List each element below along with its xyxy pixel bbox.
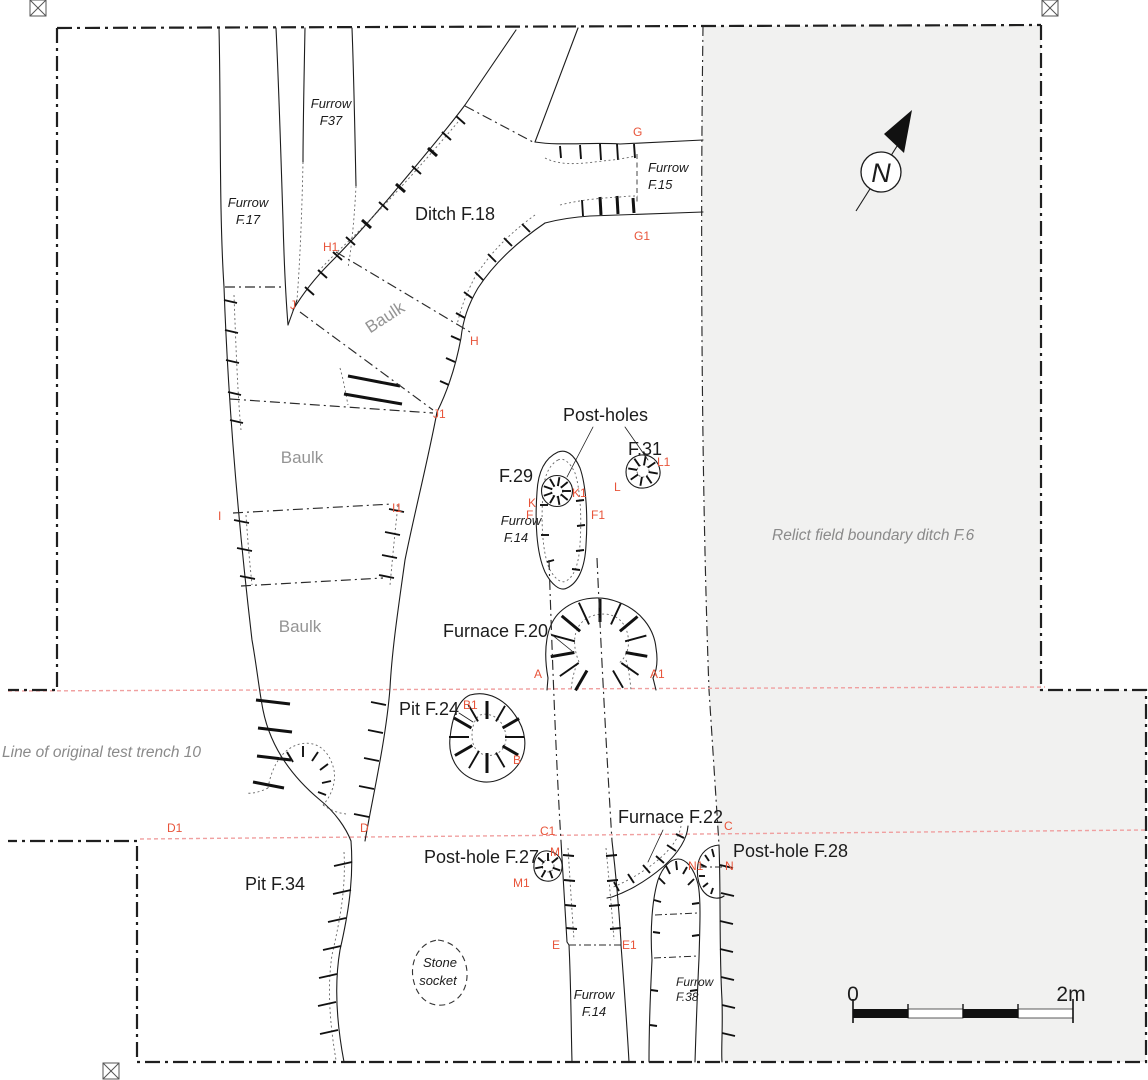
survey-marker-icon: [1042, 0, 1058, 16]
section-letter-m: M: [550, 845, 560, 859]
label-baulk-lower: Baulk: [279, 617, 322, 636]
pit-f24: [449, 694, 525, 782]
excavation-plan: N 0 2m Ditch F.18 Post-holes F.31 F.29 F…: [0, 0, 1148, 1080]
label-pit-f24: Pit F.24: [399, 699, 459, 719]
survey-marker-icon: [103, 1063, 119, 1079]
section-letter-a: A: [534, 667, 542, 681]
label-ditch-f18: Ditch F.18: [415, 204, 495, 224]
label-post-hole-f28: Post-hole F.28: [733, 841, 848, 861]
furrow-f14-upper: [536, 451, 587, 589]
section-letter-i1: I1: [392, 501, 402, 515]
label-baulk-middle: Baulk: [281, 448, 324, 467]
label-test-trench: Line of original test trench 10: [2, 744, 201, 761]
label-furrow-f17: Furrow: [228, 195, 270, 210]
section-letter-k1: K1: [572, 486, 587, 500]
label-furrow-f38-num: F.38: [676, 990, 699, 1004]
pit-f34-hachures: [318, 862, 352, 1034]
section-letter-h1: H1: [323, 240, 339, 254]
section-letter-h: H: [470, 334, 479, 348]
section-letter-l1: L1: [657, 455, 671, 469]
label-furrow-f37: Furrow: [311, 96, 353, 111]
post-hole-f29: [542, 476, 573, 507]
test-trench-hachures: [253, 700, 292, 788]
section-letter-f1: F1: [591, 508, 605, 522]
section-letter-g1: G1: [634, 229, 650, 243]
section-letter-m1: M1: [513, 876, 530, 890]
label-stone-socket: Stone: [423, 955, 457, 970]
furrow-f38: [649, 859, 700, 1062]
section-letter-j1: J1: [433, 407, 446, 421]
label-post-hole-f27: Post-hole F.27: [424, 847, 539, 867]
label-furrow-f14-lower: Furrow: [574, 987, 616, 1002]
section-letter-j: J: [290, 298, 296, 312]
f15-south-hachures: [582, 196, 634, 216]
label-baulk-upper: Baulk: [362, 298, 408, 337]
label-furrow-f37-num: F37: [320, 113, 343, 128]
site-plan-svg: N 0 2m Ditch F.18 Post-holes F.31 F.29 F…: [0, 0, 1148, 1080]
post-hole-f31: [626, 455, 660, 488]
label-furrow-f15-num: F.15: [648, 177, 673, 192]
section-letter-g: G: [633, 125, 642, 139]
label-furrow-f38: Furrow: [676, 975, 715, 989]
label-furrow-f14-upper: Furrow: [501, 513, 543, 528]
label-furnace-f20: Furnace F.20: [443, 621, 548, 641]
section-letter-e: E: [552, 938, 560, 952]
label-furrow-f15: Furrow: [648, 160, 690, 175]
scale-max-label: 2m: [1056, 983, 1085, 1006]
label-f29: F.29: [499, 466, 533, 486]
section-letter-b1: B1: [463, 698, 478, 712]
label-furnace-f22: Furnace F.22: [618, 807, 723, 827]
section-letter-d1: D1: [167, 821, 183, 835]
survey-marker-icon: [30, 0, 46, 16]
label-furrow-f17-num: F.17: [236, 212, 261, 227]
section-letter-c1: C1: [540, 824, 556, 838]
section-letter-c: C: [724, 819, 733, 833]
section-letter-n1: N1: [688, 859, 704, 873]
junction-hachures: [287, 746, 331, 795]
label-post-holes: Post-holes: [563, 405, 648, 425]
ditch-f18-se-hachures: [440, 224, 530, 385]
section-letter-i: I: [218, 509, 221, 523]
label-furrow-f14-lower-num: F.14: [582, 1004, 606, 1019]
north-label: N: [871, 158, 891, 188]
strip-left-hachures: [224, 300, 243, 423]
section-letter-n: N: [725, 859, 734, 873]
furnace-f22-hachures: [614, 834, 684, 891]
section-letters: G G1 H1 J H J1 I I1 K K1 F F1 L L1 A A1 …: [167, 125, 734, 952]
label-pit-f34: Pit F.34: [245, 874, 305, 894]
furrow-f15: [535, 140, 703, 223]
section-i1-hachures: [379, 509, 404, 578]
label-relict-ditch: Relict field boundary ditch F.6: [772, 527, 975, 544]
label-stone-socket-2: socket: [419, 973, 458, 988]
section-letter-a1: A1: [650, 667, 665, 681]
central-strip: [219, 28, 437, 1062]
label-furrow-f14-upper-num: F.14: [504, 530, 528, 545]
scale-zero-label: 0: [847, 983, 859, 1006]
section-letter-e1: E1: [622, 938, 637, 952]
section-letter-f: F: [526, 508, 533, 522]
section-letter-b: B: [513, 753, 521, 767]
section-letter-d: D: [360, 821, 369, 835]
section-letter-l: L: [614, 480, 621, 494]
f15-north-hachures: [560, 144, 635, 160]
strip-right-hachures: [354, 702, 386, 817]
